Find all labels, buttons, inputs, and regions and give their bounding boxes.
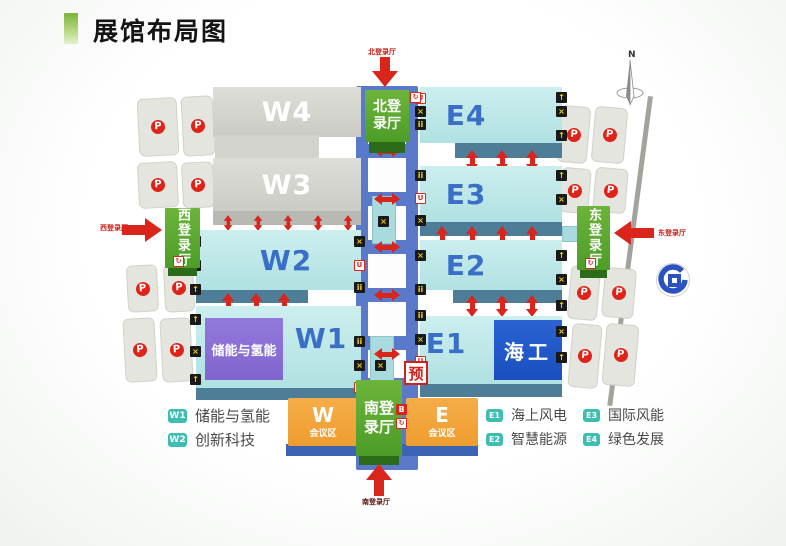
- restaurant-icon: ×: [354, 360, 365, 371]
- door-arrow: [344, 215, 353, 231]
- parking-icon: P: [611, 285, 626, 300]
- south-entrance-arrow-label: 南登录厅: [362, 497, 390, 507]
- north-entrance-hall: 北登录厅: [365, 90, 409, 142]
- east-entrance-facade: [580, 270, 607, 278]
- hall-e4: E4: [420, 87, 562, 143]
- parking-icon: P: [151, 178, 166, 193]
- restaurant-icon: ×: [415, 106, 426, 117]
- hall-e1-label: E1: [426, 327, 467, 360]
- legend-label-e3: 国际风能: [608, 405, 664, 425]
- legend-badge-e1: E1: [486, 409, 503, 422]
- parking-icon: P: [135, 281, 150, 296]
- legend-label-w1: 储能与氢能: [195, 405, 270, 426]
- crossing-arrow: [374, 348, 400, 360]
- door-arrow: [526, 295, 538, 317]
- parking-icon: P: [133, 343, 148, 358]
- door-arrow: [466, 295, 478, 317]
- metro-station-icon: [655, 262, 691, 298]
- corridor-window: [368, 254, 406, 288]
- legend-item: W1 储能与氢能: [168, 405, 270, 426]
- door-arrow: [496, 295, 508, 317]
- restaurant-icon: ×: [556, 274, 567, 285]
- parking-icon: P: [577, 348, 592, 363]
- east-entrance-arrow: [614, 221, 654, 245]
- crossing-arrow: [374, 193, 400, 205]
- zone-energy-storage-hydrogen-label: 储能与氢能: [211, 340, 276, 359]
- restaurant-icon: ×: [378, 216, 389, 227]
- legend-badge-e4: E4: [583, 433, 600, 446]
- exhibition-layout-map: 展馆布局图 N P P P P P P P P P P P P P P P P: [0, 0, 786, 546]
- restaurant-icon: ×: [354, 236, 365, 247]
- west-entrance-arrow: [122, 218, 162, 242]
- parking-lot: P: [180, 95, 215, 157]
- parking-icon: P: [603, 183, 618, 198]
- restroom-icon: ii: [415, 284, 426, 295]
- hall-w2: W2: [196, 230, 361, 290]
- hall-e2: E2: [420, 240, 562, 290]
- page-title: 展馆布局图: [93, 12, 228, 48]
- parking-lot: P: [159, 317, 193, 383]
- parking-lot: P: [181, 161, 215, 209]
- legend-badge-w1: W1: [168, 409, 187, 423]
- business-icon: B: [396, 404, 407, 415]
- parking-lot: P: [126, 264, 159, 313]
- hall-e1-facade: [420, 384, 562, 397]
- restaurant-icon: ×: [556, 194, 567, 205]
- restaurant-icon: ×: [556, 326, 567, 337]
- escalator-icon: ↑: [190, 284, 201, 295]
- crossing-arrow: [374, 289, 400, 301]
- conference-west-label: 会议区: [309, 426, 336, 439]
- parking-icon: P: [191, 178, 206, 193]
- conference-area-west: W 会议区: [288, 398, 358, 446]
- legend-item: E2 智慧能源: [486, 429, 567, 449]
- restaurant-icon: ×: [415, 250, 426, 261]
- parking-lot: P: [567, 323, 602, 389]
- restroom-icon: ii: [415, 310, 426, 321]
- restroom-icon: ii: [354, 282, 365, 293]
- parking-icon: P: [567, 183, 582, 198]
- hall-e3-label: E3: [446, 178, 487, 211]
- door-arrow: [254, 215, 263, 231]
- hall-w3: W3: [213, 158, 361, 212]
- first-aid-icon: U: [354, 260, 365, 271]
- escalator-icon: ↑: [190, 374, 201, 385]
- legend-label-e2: 智慧能源: [511, 429, 567, 449]
- south-entrance-arrow: [366, 464, 392, 496]
- conference-area-east: E 会议区: [406, 398, 478, 446]
- legend-item: E3 国际风能: [583, 405, 664, 425]
- restaurant-icon: ×: [375, 360, 386, 371]
- south-entrance-hall-label: 南登录厅: [362, 399, 396, 437]
- title-accent-bar: [64, 13, 78, 44]
- hall-w4: W4: [213, 87, 361, 137]
- parking-lot: P: [122, 317, 157, 383]
- escalator-icon: ↑: [556, 300, 567, 311]
- west-entrance-facade: [168, 268, 197, 276]
- pre-registration-badge: 预: [404, 361, 428, 385]
- escalator-icon: ↑: [556, 92, 567, 103]
- escalator-icon: ↑: [556, 250, 567, 261]
- hall-w4-w3-connector: [215, 135, 319, 160]
- conference-west-letter: W: [312, 405, 334, 426]
- restroom-icon: ii: [415, 170, 426, 181]
- parking-icon: P: [602, 127, 617, 142]
- zone-offshore-engineering: 海工: [494, 320, 562, 380]
- legend-label-w2: 创新科技: [195, 429, 255, 450]
- parking-lot: P: [137, 97, 180, 157]
- east-entrance-arrow-label: 东登录厅: [658, 228, 686, 238]
- registration-icon: ↻: [410, 92, 421, 103]
- parking-lot: P: [137, 161, 179, 209]
- conference-east-letter: E: [435, 405, 449, 426]
- restaurant-icon: ×: [415, 334, 426, 345]
- legend-badge-e2: E2: [486, 433, 503, 446]
- escalator-icon: ↑: [190, 314, 201, 325]
- crossing-arrow: [374, 241, 400, 253]
- hall-w4-label: W4: [262, 97, 313, 128]
- escalator-icon: ↑: [556, 352, 567, 363]
- north-entrance-hall-label: 北登录厅: [370, 99, 404, 134]
- north-entrance-arrow-label: 北登录厅: [368, 47, 396, 57]
- first-aid-icon: U: [415, 193, 426, 204]
- hall-e4-label: E4: [446, 99, 487, 132]
- north-entrance-arrow: [372, 57, 398, 87]
- legend-item: W2 创新科技: [168, 429, 255, 450]
- restroom-icon: ii: [415, 119, 426, 130]
- parking-icon: P: [576, 285, 591, 300]
- parking-icon: P: [566, 127, 581, 142]
- legend-label-e1: 海上风电: [511, 405, 567, 425]
- corridor-window: [368, 302, 406, 336]
- zone-offshore-engineering-label: 海工: [504, 336, 552, 365]
- registration-icon: ↻: [585, 258, 596, 269]
- restaurant-icon: ×: [556, 106, 567, 117]
- hall-w1-label: W1: [295, 322, 347, 355]
- restaurant-icon: ×: [190, 346, 201, 357]
- door-arrow: [284, 215, 293, 231]
- east-link-passage: [562, 226, 578, 242]
- registration-icon: ↻: [173, 256, 184, 267]
- zone-energy-storage-hydrogen: 储能与氢能: [205, 318, 283, 380]
- escalator-icon: ↑: [556, 130, 567, 141]
- hall-w2-label: W2: [260, 244, 312, 277]
- parking-icon: P: [613, 347, 628, 362]
- legend-item: E4 绿色发展: [583, 429, 664, 449]
- north-entrance-facade: [369, 142, 405, 153]
- door-arrow: [224, 215, 233, 231]
- compass-icon: [613, 58, 647, 112]
- parking-icon: P: [151, 120, 166, 135]
- hall-e2-label: E2: [446, 249, 487, 282]
- legend-label-e4: 绿色发展: [608, 429, 664, 449]
- registration-icon: ↻: [396, 418, 407, 429]
- legend-badge-w2: W2: [168, 433, 187, 447]
- restaurant-icon: ×: [415, 215, 426, 226]
- hall-e3: E3: [420, 166, 562, 222]
- corridor-window: [368, 158, 406, 192]
- legend-item: E1 海上风电: [486, 405, 567, 425]
- escalator-icon: ↑: [556, 170, 567, 181]
- door-arrow: [314, 215, 323, 231]
- legend-badge-e3: E3: [583, 409, 600, 422]
- parking-icon: P: [172, 281, 187, 296]
- parking-icon: P: [191, 119, 206, 134]
- hall-w3-label: W3: [262, 170, 313, 201]
- parking-lot: P: [591, 106, 629, 165]
- restroom-icon: ii: [354, 336, 365, 347]
- conference-east-label: 会议区: [428, 426, 455, 439]
- parking-lot: P: [601, 323, 639, 388]
- parking-icon: P: [169, 343, 184, 358]
